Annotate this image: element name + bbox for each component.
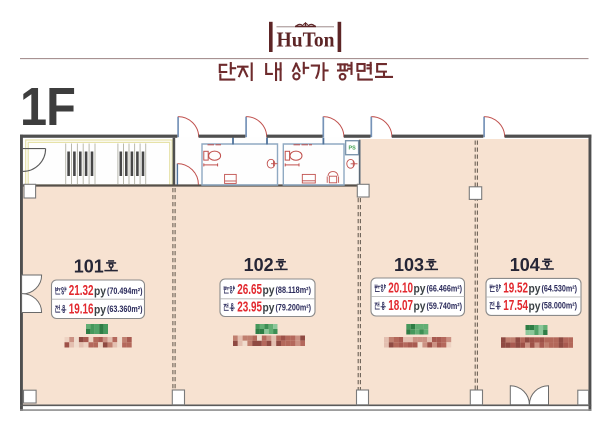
svg-text:py: py [529, 299, 541, 313]
svg-text:26.65: 26.65 [237, 282, 262, 298]
svg-text:HuTon: HuTon [277, 28, 335, 52]
svg-text:(79.200m²): (79.200m²) [276, 302, 312, 312]
svg-text:23.95: 23.95 [237, 300, 262, 316]
svg-text:py: py [414, 282, 426, 296]
svg-text:py: py [263, 301, 275, 315]
svg-text:17.54: 17.54 [503, 298, 528, 314]
svg-text:20.10: 20.10 [388, 281, 413, 297]
svg-text:PS: PS [348, 146, 356, 152]
svg-text:(59.740m²): (59.740m²) [427, 301, 463, 311]
svg-text:(58.000m²): (58.000m²) [542, 301, 578, 311]
svg-text:py: py [529, 282, 541, 296]
svg-text:py: py [94, 302, 106, 316]
svg-text:py: py [94, 284, 106, 298]
svg-text:(70.494m²): (70.494m²) [107, 286, 143, 296]
svg-text:21.32: 21.32 [69, 283, 94, 299]
svg-text:18.07: 18.07 [388, 298, 413, 314]
svg-text:19.52: 19.52 [503, 281, 528, 297]
svg-text:1F: 1F [20, 78, 75, 137]
svg-text:(63.360m²): (63.360m²) [107, 304, 143, 314]
svg-text:19.16: 19.16 [69, 301, 94, 317]
svg-text:104: 104 [510, 255, 540, 275]
svg-text:py: py [263, 283, 275, 297]
svg-text:101: 101 [74, 256, 104, 276]
svg-text:103: 103 [394, 255, 424, 275]
svg-text:py: py [414, 299, 426, 313]
svg-text:102: 102 [244, 255, 274, 275]
svg-text:(64.530m²): (64.530m²) [542, 283, 578, 293]
svg-text:(66.466m²): (66.466m²) [427, 283, 463, 293]
svg-text:(88.118m²): (88.118m²) [276, 285, 312, 295]
